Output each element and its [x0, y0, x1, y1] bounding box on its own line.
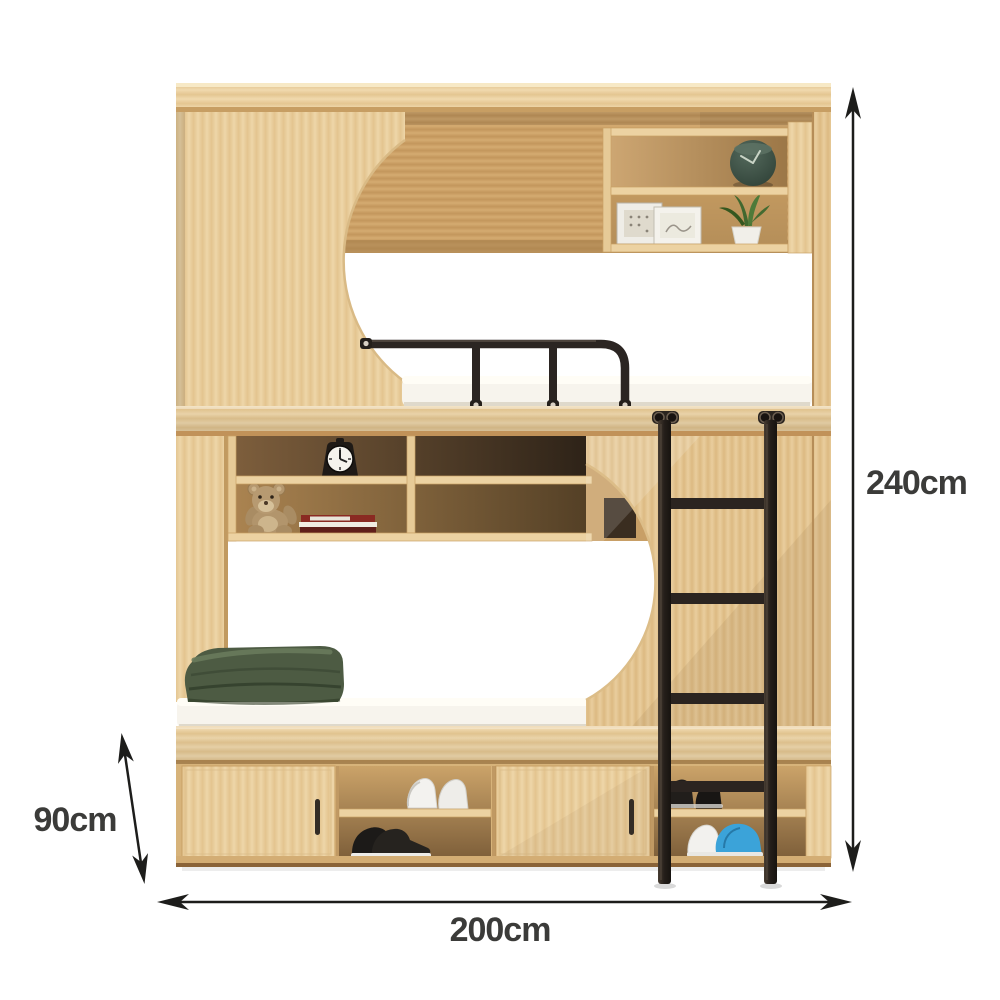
middle-shelf-unit — [228, 436, 592, 541]
lower-bed-base — [176, 726, 831, 764]
folded-blanket — [185, 646, 344, 704]
product-image-canvas: 240cm 200cm 90cm — [0, 0, 1000, 1000]
door-handle — [629, 799, 634, 835]
ladder-rail-left — [658, 420, 671, 884]
right-wall-strip — [812, 103, 831, 436]
left-cabinet-panel — [176, 111, 405, 406]
width-dimension-arrow — [157, 894, 852, 910]
upper-wall-shelf — [603, 122, 812, 253]
storage-cabinet-row — [176, 764, 831, 871]
cabinet-door-right — [496, 766, 650, 858]
height-dimension-label: 240cm — [866, 464, 967, 502]
upper-mattress — [402, 376, 812, 408]
bunk-bed — [176, 83, 831, 889]
door-handle — [315, 799, 320, 835]
width-dimension-label: 200cm — [450, 911, 551, 949]
lower-height-dimension-label: 90cm — [34, 801, 117, 839]
bunk-bed-illustration: 240cm 200cm 90cm — [0, 0, 1000, 1000]
ladder-rail-right — [764, 420, 777, 884]
ladder-rung — [660, 781, 775, 792]
shoe-shelf-left — [339, 766, 491, 858]
ladder-rung — [660, 693, 775, 704]
shoe-shelf-right — [654, 766, 806, 858]
cabinet-door-left — [182, 766, 335, 858]
lower-height-dimension-arrow — [118, 733, 148, 884]
ladder-rung — [660, 498, 775, 509]
height-dimension-arrow — [845, 87, 861, 872]
books-stack — [299, 515, 377, 533]
upper-bed-base — [176, 406, 831, 436]
top-panel — [176, 83, 831, 112]
photo-frames — [617, 203, 701, 244]
ladder-rung — [660, 593, 775, 604]
white-blue-shoes — [687, 824, 763, 857]
